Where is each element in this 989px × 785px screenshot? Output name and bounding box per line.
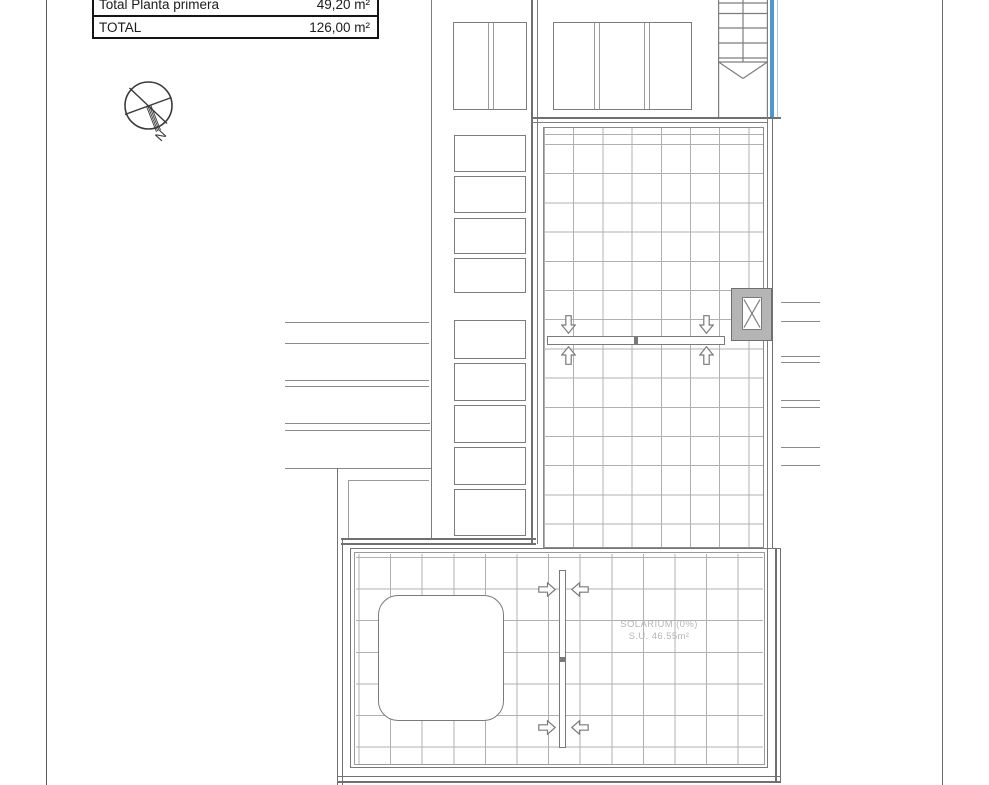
table-row-label: Total Planta primera bbox=[99, 0, 219, 12]
boundary-wall-line bbox=[337, 776, 781, 778]
wall-line bbox=[781, 400, 820, 401]
table-row-value: 126,00 m² bbox=[309, 20, 370, 35]
arrow-down-icon bbox=[699, 315, 714, 334]
boundary-wall-line bbox=[780, 548, 782, 782]
wall-line bbox=[781, 356, 820, 357]
terrace-left-wall-line bbox=[531, 0, 533, 544]
skylight-opening bbox=[378, 595, 504, 721]
solarium-label-line1: SOLARIUM (0%) bbox=[594, 619, 724, 631]
panel-divider-line bbox=[644, 23, 645, 109]
staircase bbox=[718, 0, 768, 118]
section-cut-blue-line bbox=[770, 0, 774, 117]
arrow-down-icon bbox=[561, 315, 576, 334]
wall-line bbox=[348, 480, 349, 539]
louver-slat bbox=[454, 320, 526, 359]
boundary-wall-line bbox=[775, 548, 777, 782]
table-row: TOTAL 126,00 m² bbox=[94, 17, 377, 37]
arrow-left-icon bbox=[571, 582, 589, 597]
wall-line bbox=[285, 423, 430, 424]
arrow-right-icon bbox=[538, 582, 556, 597]
solarium-area-label: SOLARIUM (0%) S.U. 46.55m² bbox=[594, 619, 724, 642]
wall-line bbox=[781, 302, 820, 303]
wall-line bbox=[781, 362, 820, 363]
louver-slat bbox=[454, 489, 526, 536]
compass-north-label: N bbox=[152, 127, 169, 144]
wall-line bbox=[431, 0, 432, 539]
floor-plan-canvas: Total Planta primera 49,20 m² TOTAL 126,… bbox=[0, 0, 989, 785]
party-wall-line bbox=[341, 543, 536, 545]
boundary-wall-line bbox=[337, 468, 338, 785]
table-row-label: TOTAL bbox=[99, 20, 141, 35]
panel-divider-line bbox=[649, 23, 650, 109]
louver-slat bbox=[454, 405, 526, 443]
wall-line bbox=[285, 386, 429, 387]
pergola-panel bbox=[553, 22, 692, 110]
terrace-top-wall-line bbox=[531, 122, 768, 123]
panel-divider-line bbox=[594, 23, 595, 109]
panel-divider-line bbox=[599, 23, 600, 109]
wall-line bbox=[781, 447, 820, 448]
louver-slat bbox=[454, 176, 526, 213]
wall-line bbox=[285, 468, 431, 469]
wall-line bbox=[781, 407, 820, 408]
balustrade-joint bbox=[634, 337, 638, 344]
wall-line bbox=[348, 480, 429, 481]
wall-line bbox=[781, 465, 820, 466]
plot-boundary-right-line bbox=[942, 0, 943, 785]
wall-line bbox=[285, 343, 429, 344]
louver-slat bbox=[454, 363, 526, 401]
party-wall-line bbox=[341, 538, 536, 540]
plot-boundary-left-line bbox=[46, 0, 47, 785]
louver-slat bbox=[454, 218, 526, 255]
arrow-left-icon bbox=[571, 720, 589, 735]
area-summary-table: Total Planta primera 49,20 m² TOTAL 126,… bbox=[92, 0, 379, 39]
louver-slat bbox=[454, 135, 526, 172]
north-compass-icon: N bbox=[118, 74, 180, 144]
glass-screen bbox=[559, 570, 567, 748]
section-cut-light-line bbox=[777, 0, 778, 117]
panel-divider-line bbox=[488, 23, 489, 109]
terrace-top-wall-line bbox=[531, 117, 781, 119]
louver-slat bbox=[454, 447, 526, 485]
panel-divider-line bbox=[493, 23, 494, 109]
pergola-panel bbox=[453, 22, 527, 110]
boundary-wall-line bbox=[342, 538, 344, 785]
wall-line bbox=[285, 380, 429, 381]
vent-flue bbox=[742, 297, 762, 330]
arrow-up-icon bbox=[561, 346, 576, 365]
solarium-label-line2: S.U. 46.55m² bbox=[594, 631, 724, 643]
arrow-right-icon bbox=[538, 720, 556, 735]
glass-screen-joint bbox=[560, 657, 566, 662]
stair-direction-chevron bbox=[719, 62, 743, 79]
wall-line bbox=[285, 322, 429, 323]
wall-line bbox=[285, 430, 430, 431]
boundary-wall-line bbox=[337, 781, 781, 783]
terrace-left-wall-line bbox=[537, 0, 538, 544]
arrow-up-icon bbox=[699, 346, 714, 365]
louver-slat bbox=[454, 258, 526, 293]
wall-line bbox=[781, 321, 820, 322]
glass-balustrade bbox=[547, 336, 725, 345]
table-row: Total Planta primera 49,20 m² bbox=[94, 0, 377, 17]
chimney-vent-box bbox=[731, 288, 772, 341]
table-row-value: 49,20 m² bbox=[317, 0, 370, 12]
